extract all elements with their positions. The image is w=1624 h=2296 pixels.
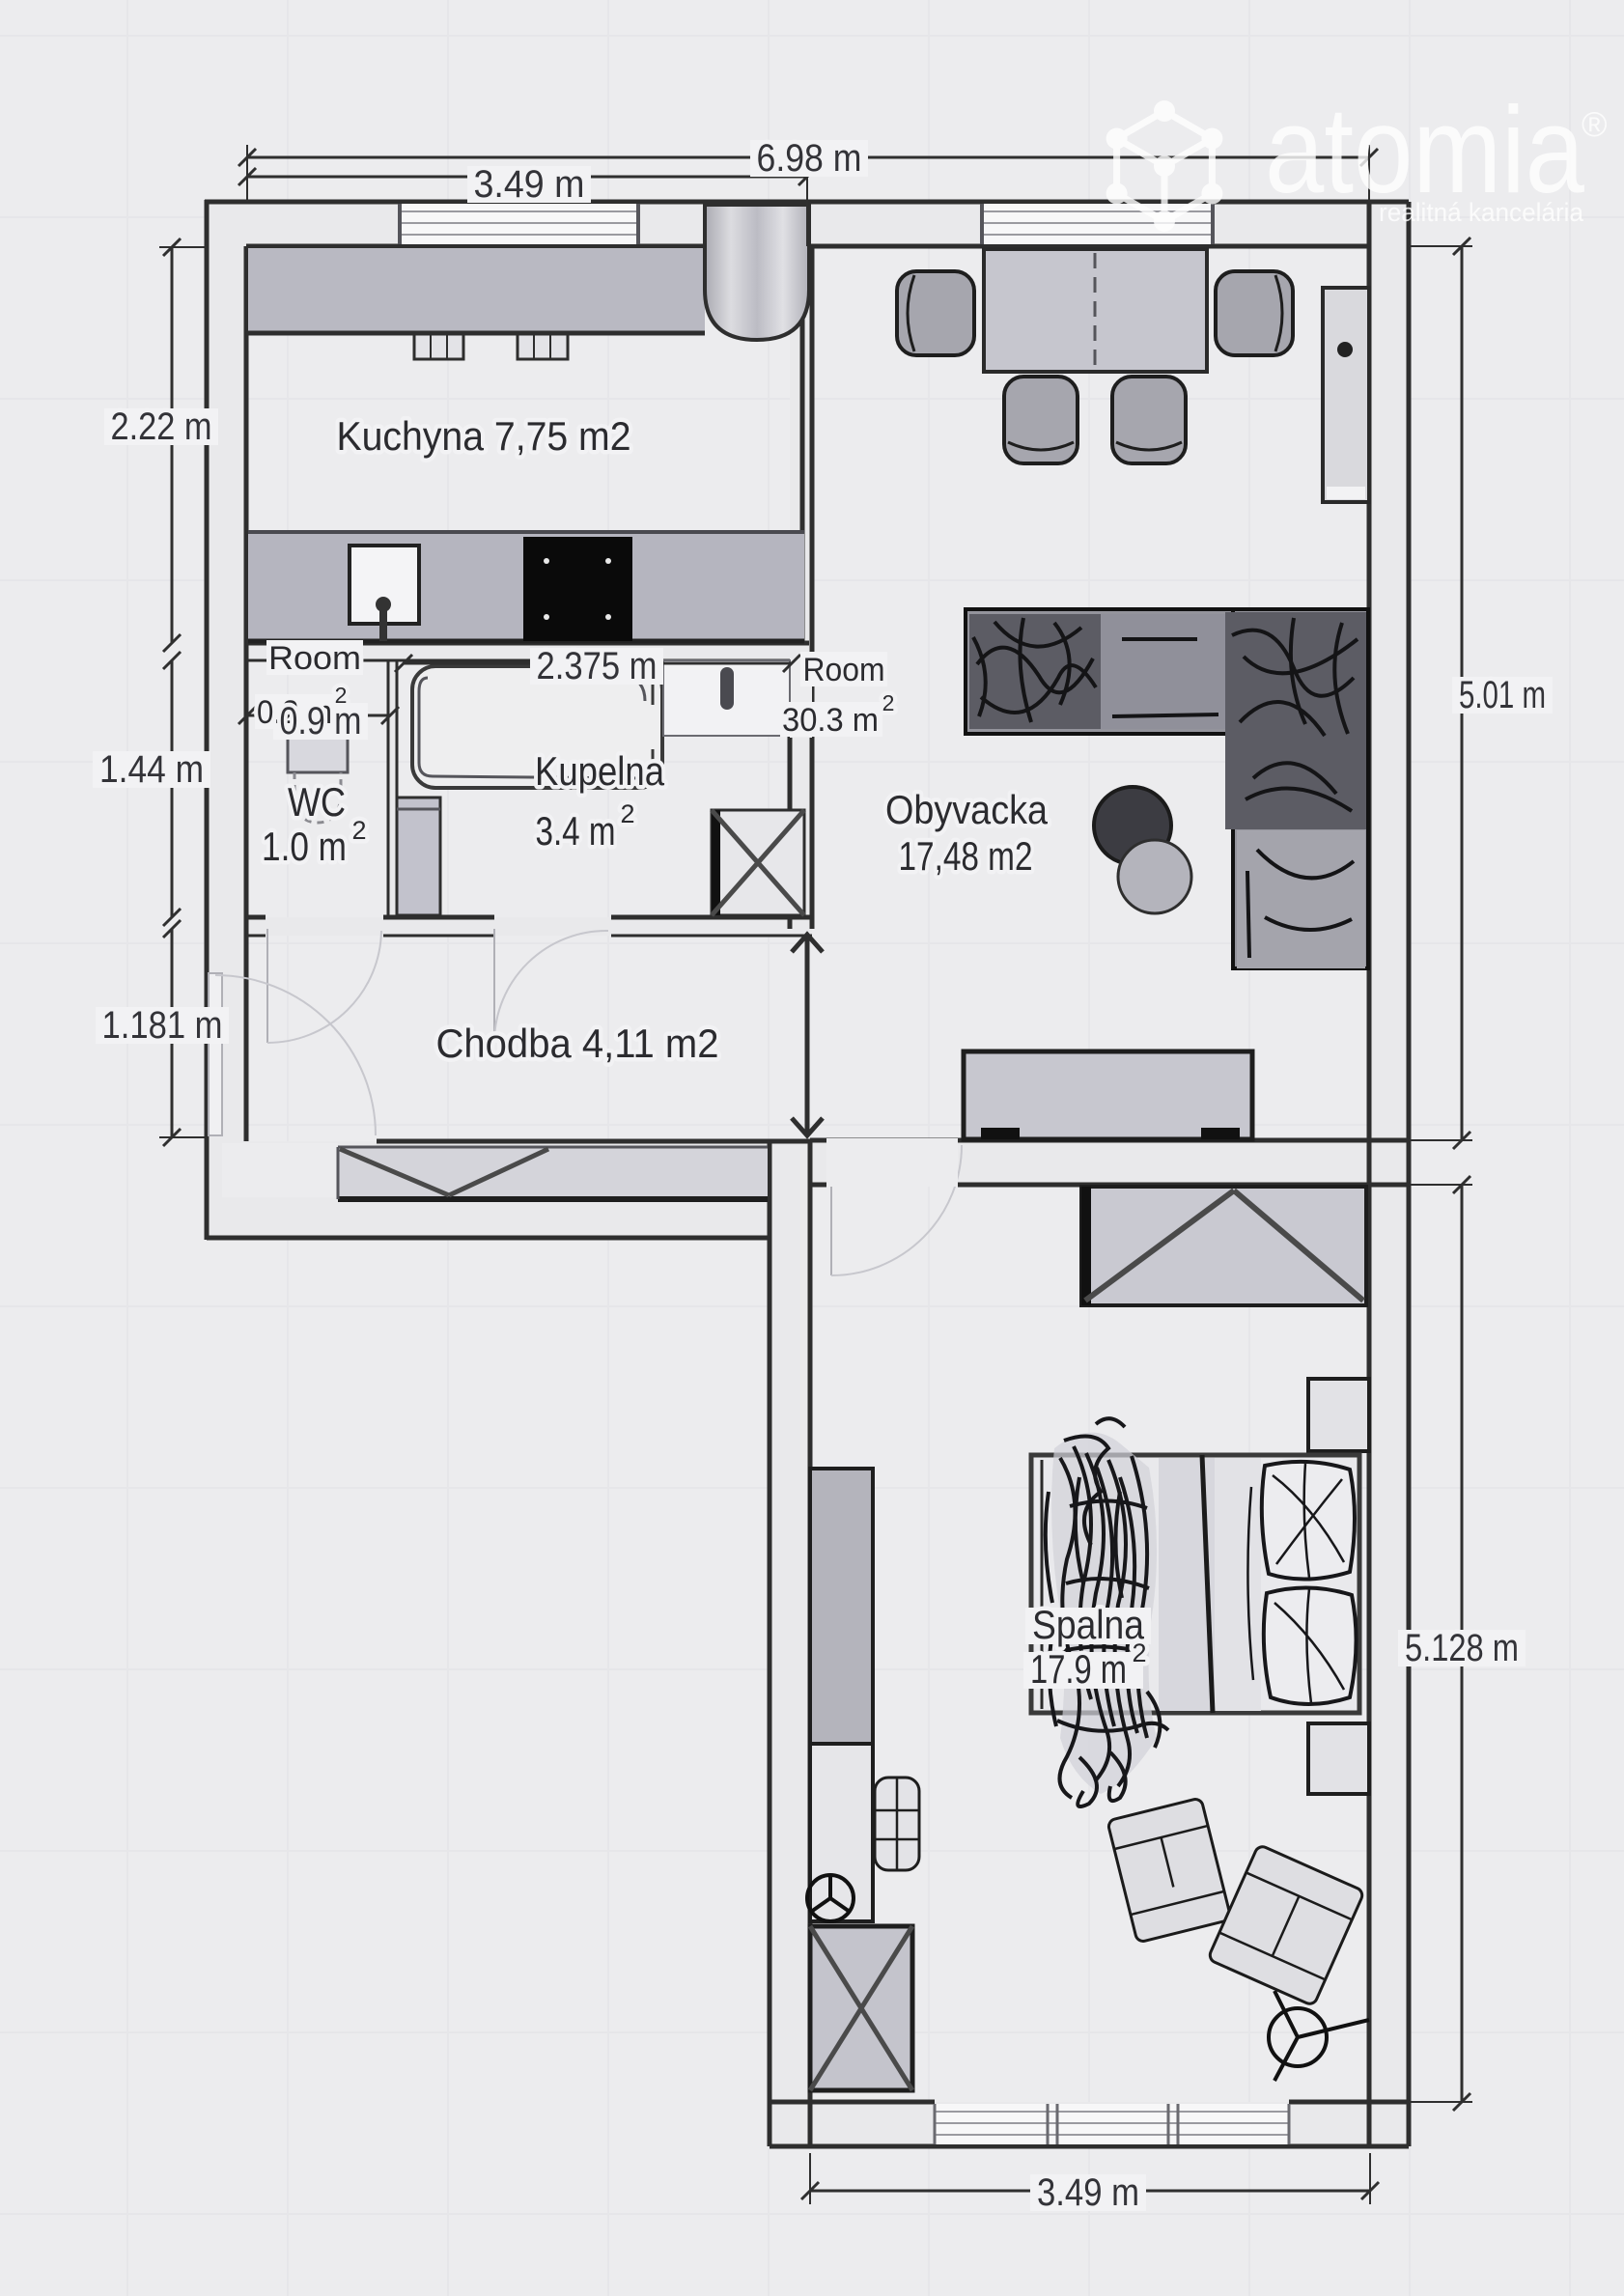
svg-text:2: 2 — [620, 799, 634, 828]
svg-text:Room: Room — [268, 640, 361, 677]
svg-text:Chodba 4,11 m2: Chodba 4,11 m2 — [436, 1021, 719, 1066]
svg-text:1.0 m: 1.0 m — [262, 824, 347, 869]
svg-text:WC: WC — [288, 779, 346, 825]
svg-text:Room: Room — [803, 652, 885, 688]
svg-text:2: 2 — [882, 690, 895, 715]
svg-text:Kupelna: Kupelna — [535, 748, 665, 794]
svg-text:6.98 m: 6.98 m — [757, 137, 862, 180]
svg-text:3.4 m: 3.4 m — [536, 808, 616, 854]
svg-text:realitná kancelária: realitná kancelária — [1379, 198, 1584, 227]
svg-text:17,48 m2: 17,48 m2 — [899, 833, 1033, 879]
svg-text:17.9 m: 17.9 m — [1030, 1646, 1127, 1692]
svg-text:1.44 m: 1.44 m — [99, 748, 204, 791]
svg-text:5.01 m: 5.01 m — [1459, 674, 1546, 716]
svg-text:3.49 m: 3.49 m — [1037, 2171, 1139, 2214]
svg-text:0.9 m: 0.9 m — [280, 700, 362, 742]
svg-text:2.375 m: 2.375 m — [537, 645, 658, 687]
svg-text:Spalna: Spalna — [1032, 1602, 1145, 1647]
svg-text:1.181 m: 1.181 m — [102, 1004, 223, 1047]
svg-text:3.49 m: 3.49 m — [474, 163, 585, 206]
svg-text:®: ® — [1582, 104, 1608, 144]
svg-text:Kuchyna 7,75 m2: Kuchyna 7,75 m2 — [337, 413, 631, 459]
svg-text:5.128 m: 5.128 m — [1405, 1627, 1519, 1669]
svg-text:2.22 m: 2.22 m — [111, 406, 212, 448]
svg-text:Obyvacka: Obyvacka — [885, 787, 1049, 832]
svg-text:2: 2 — [351, 816, 366, 845]
svg-text:30.3 m: 30.3 m — [782, 702, 879, 739]
svg-text:2: 2 — [1132, 1638, 1146, 1667]
